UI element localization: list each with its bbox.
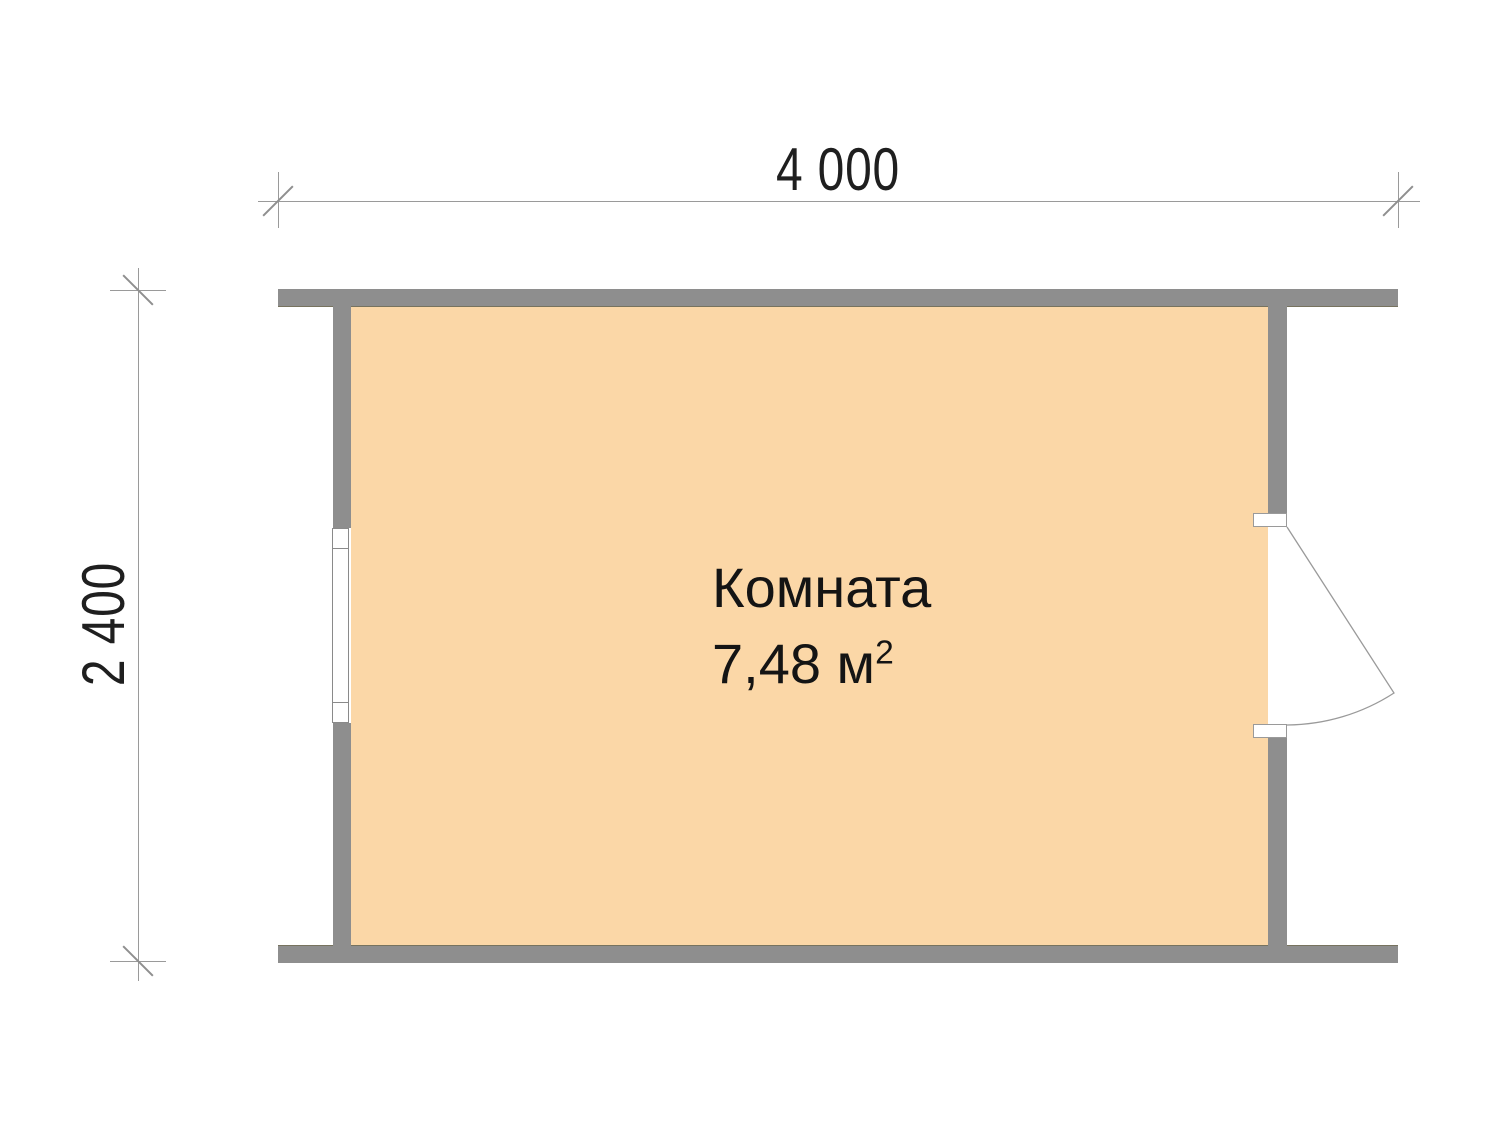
window-pane-line <box>333 702 348 703</box>
wall-right <box>1268 289 1287 513</box>
door-swing-arc <box>1287 527 1394 725</box>
dimension-width-label: 4 000 <box>776 140 900 200</box>
wall-left <box>333 289 351 528</box>
window-symbol <box>332 528 349 723</box>
window-pane-line <box>333 548 348 549</box>
wall-left <box>333 723 351 962</box>
wall-right <box>1268 738 1287 962</box>
room-label: Комната 7,48 м2 <box>712 550 931 702</box>
dimension-height-label: 2 400 <box>74 562 134 686</box>
floor-plan-canvas: 4 000 2 400 Комната 7,48 м2 <box>0 0 1500 1125</box>
wall-bottom <box>278 945 1398 963</box>
dimension-line-height <box>138 268 139 981</box>
room-area: 7,48 м2 <box>712 626 931 702</box>
door-swing-symbol <box>1240 500 1500 740</box>
room-area-exponent: 2 <box>875 634 894 671</box>
wall-top <box>278 289 1398 307</box>
room-name: Комната <box>712 550 931 626</box>
